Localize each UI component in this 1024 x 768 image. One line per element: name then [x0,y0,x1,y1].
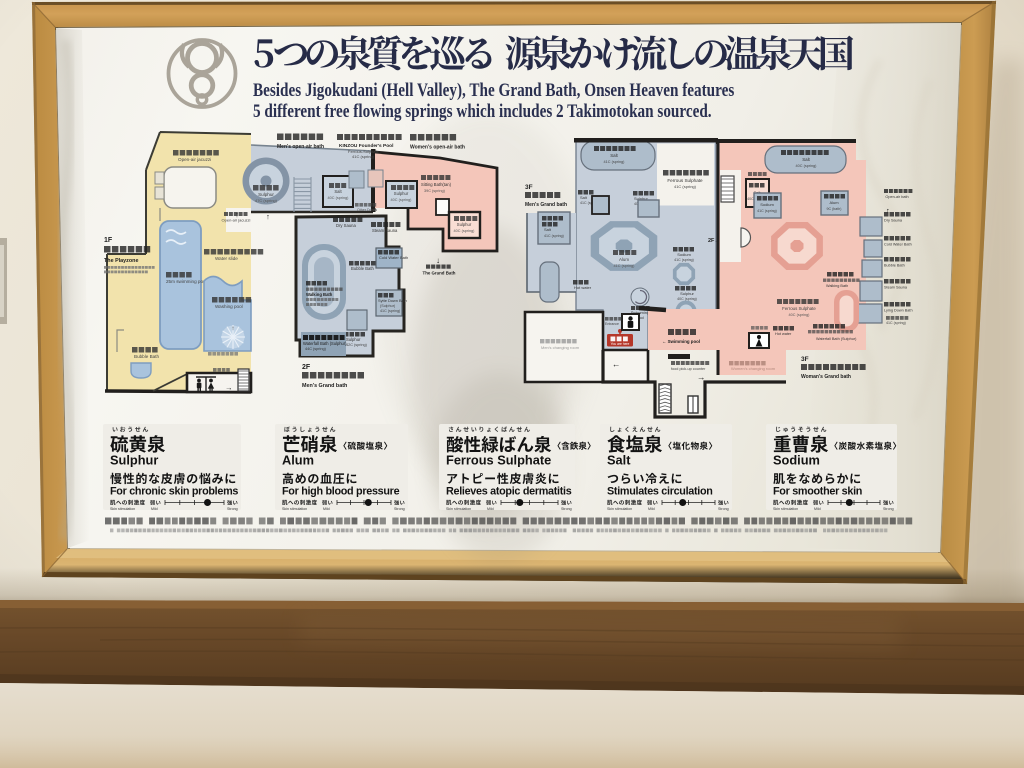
svg-text:Dry Sauna: Dry Sauna [884,219,903,223]
svg-text:Strong: Strong [394,507,405,511]
svg-text:Sulphur: Sulphur [457,222,472,227]
svg-text:Hot water: Hot water [775,332,792,336]
svg-text:Sytte Down Bath: Sytte Down Bath [378,298,407,303]
svg-text:Salt: Salt [580,195,588,200]
svg-text:40C (spring): 40C (spring) [677,297,697,301]
svg-text:Sulphur: Sulphur [346,337,361,342]
svg-text:Waterfall Bath (Sulphur): Waterfall Bath (Sulphur) [303,341,347,346]
svg-text:For chronic skin problems: For chronic skin problems [110,486,238,498]
svg-text:39C (spring): 39C (spring) [424,189,446,193]
svg-text:Open-air jacuzzi: Open-air jacuzzi [178,157,211,162]
svg-text:41C (spring): 41C (spring) [544,234,564,238]
svg-text:Salt: Salt [334,189,342,194]
svg-text:Salt: Salt [544,227,552,232]
svg-text:Woman's Grand bath: Woman's Grand bath [801,374,851,380]
svg-text:Skin stimulation: Skin stimulation [773,507,798,511]
svg-text:41C (spring): 41C (spring) [352,154,375,159]
svg-text:Strong: Strong [718,507,729,511]
svg-text:Ferrous Sulphate: Ferrous Sulphate [782,306,816,311]
svg-text:Open-air jacuzzi: Open-air jacuzzi [222,218,251,223]
svg-text:Dry Sauna: Dry Sauna [336,223,356,228]
svg-text:Mild: Mild [814,507,821,511]
svg-text:5 different free flowing sprin: 5 different free flowing springs which i… [253,100,712,121]
svg-text:41C (spring): 41C (spring) [674,258,694,262]
svg-text:Cold Water Bath: Cold Water Bath [884,243,912,247]
svg-text:42C (spring): 42C (spring) [346,343,368,347]
svg-text:40C (spring): 40C (spring) [391,198,413,202]
svg-text:Stimulates circulation: Stimulates circulation [607,486,713,498]
svg-text:Ferrous Sulphate: Ferrous Sulphate [667,178,703,183]
svg-text:Men's changing room: Men's changing room [541,345,580,350]
svg-text:Sitting Bath(tan): Sitting Bath(tan) [421,182,452,187]
svg-text:44C (spring): 44C (spring) [305,347,327,351]
svg-text:40C (spring): 40C (spring) [796,164,818,168]
svg-text:Sulphur: Sulphur [394,191,409,196]
svg-text:1F: 1F [104,237,113,244]
svg-text:Sulphur: Sulphur [110,453,158,468]
svg-text:Salt: Salt [610,153,618,158]
svg-text:3F: 3F [525,184,533,191]
svg-text:25m swimming pool: 25m swimming pool [166,279,207,284]
svg-text:Sodium: Sodium [677,252,691,257]
svg-text:Bubble Bath: Bubble Bath [351,266,374,271]
svg-text:←: ← [612,359,621,369]
svg-text:Alum: Alum [282,453,314,468]
svg-text:Water slide: Water slide [215,256,238,261]
svg-text:Bubble Bath: Bubble Bath [884,264,905,268]
svg-text:Salt: Salt [607,453,631,468]
svg-text:The Grand Bath: The Grand Bath [423,271,456,276]
svg-text:Steam Sauna: Steam Sauna [884,286,908,290]
svg-text:Relieves atopic dermatitis: Relieves atopic dermatitis [446,486,572,498]
svg-text:Sulphur: Sulphur [258,192,274,197]
svg-text:Open-air bath: Open-air bath [885,195,908,199]
svg-text:2F: 2F [302,364,311,371]
svg-text:(Sulphur): (Sulphur) [380,304,395,308]
svg-text:↓: ↓ [436,256,440,265]
svg-text:→: → [697,372,706,382]
svg-text:Strong: Strong [883,507,894,511]
svg-text:Walking Bath: Walking Bath [826,284,848,288]
svg-text:Walking Bath: Walking Bath [306,292,333,297]
svg-text:Women's open-air bath: Women's open-air bath [410,145,465,151]
svg-text:41C (spring): 41C (spring) [380,309,400,313]
svg-text:Alum: Alum [619,257,629,262]
svg-text:9C (bath): 9C (bath) [827,207,842,211]
svg-text:41C (spring): 41C (spring) [757,209,777,213]
svg-text:Lying Down Bath: Lying Down Bath [884,309,913,313]
svg-text:Skin stimulation: Skin stimulation [446,507,471,511]
svg-text:Strong: Strong [227,507,238,511]
svg-text:Mild: Mild [323,507,330,511]
svg-text:Entrance: Entrance [605,322,619,326]
svg-text:Mild: Mild [151,507,158,511]
svg-text:41C (spring): 41C (spring) [886,321,906,325]
svg-text:↑: ↑ [266,212,270,221]
svg-text:Mild: Mild [487,507,494,511]
svg-text:Washing pool: Washing pool [215,304,243,309]
svg-text:40C (spring): 40C (spring) [454,229,476,233]
svg-text:Strong: Strong [561,507,572,511]
svg-text:3F: 3F [801,356,809,363]
svg-text:41C (spring): 41C (spring) [614,264,636,268]
svg-text:Men's open-air bath: Men's open-air bath [277,144,324,150]
svg-text:Men's Grand bath: Men's Grand bath [302,383,347,389]
svg-text:Skin stimulation: Skin stimulation [282,507,307,511]
svg-text:Sodium: Sodium [760,202,774,207]
svg-text:The Playzone: The Playzone [104,258,138,264]
svg-text:Skin stimulation: Skin stimulation [607,507,632,511]
svg-text:40C (spring): 40C (spring) [789,313,811,317]
svg-text:Alum: Alum [829,200,839,205]
svg-text:← Swimming pool: ← Swimming pool [662,339,700,344]
svg-text:Sodium: Sodium [773,453,820,468]
svg-text:47C (spring): 47C (spring) [255,198,278,203]
svg-text:Women's changing room: Women's changing room [731,366,776,371]
svg-text:41C (spring): 41C (spring) [604,160,626,164]
svg-text:Sulphur: Sulphur [680,291,694,296]
svg-text:For high blood pressure: For high blood pressure [282,486,400,498]
svg-text:For smoother skin: For smoother skin [773,486,862,498]
svg-text:Ferrous Sulphate: Ferrous Sulphate [446,453,551,468]
svg-text:You are here: You are here [611,342,630,346]
svg-text:↑: ↑ [231,325,234,332]
svg-text:Bubble Bath: Bubble Bath [134,354,159,359]
svg-text:Steam Sauna: Steam Sauna [372,228,398,233]
svg-text:2F→: 2F→ [708,238,720,244]
svg-text:Men's Grand bath: Men's Grand bath [525,202,567,208]
svg-text:40C (spring): 40C (spring) [328,196,350,200]
svg-text:Other Drinks: Other Drinks [357,208,377,212]
svg-text:food pick-up counter: food pick-up counter [671,367,706,371]
svg-text:Skin stimulation: Skin stimulation [110,507,135,511]
svg-text:Hot water: Hot water [574,285,592,290]
svg-text:Waterfall Bath (Sulphur): Waterfall Bath (Sulphur) [816,337,857,341]
svg-text:Cold Water Bath: Cold Water Bath [379,255,408,260]
svg-text:Besides Jigokudani (Hell Valle: Besides Jigokudani (Hell Valley), The Gr… [253,79,735,100]
svg-text:41C (spring): 41C (spring) [674,184,697,189]
svg-text:Salt: Salt [802,157,810,162]
svg-text:Mild: Mild [648,507,655,511]
svg-text:→: → [225,383,233,392]
